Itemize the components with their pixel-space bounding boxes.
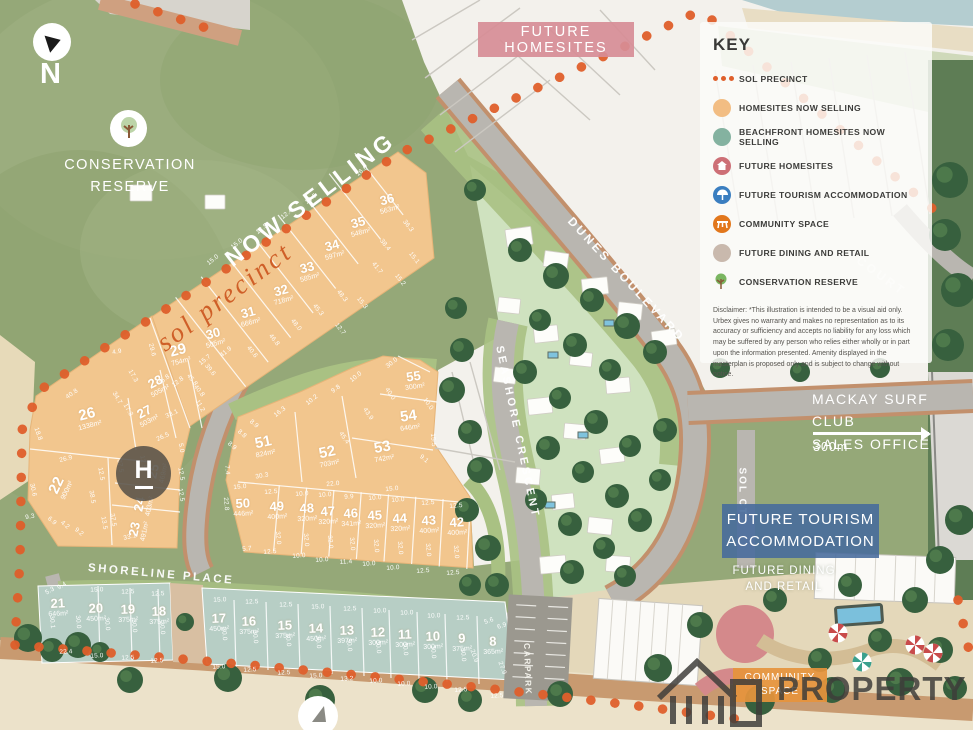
lot-area: 450m² [209, 625, 229, 633]
lot-number: 50 [233, 496, 254, 511]
key-legend-panel: KEY SOL PRECINCTHOMESITES NOW SELLINGBEA… [700, 22, 932, 363]
key-item-label: FUTURE HOMESITES [739, 161, 833, 171]
lot-number: 42 [447, 515, 468, 530]
lot-13[interactable]: 13397m² [337, 623, 358, 644]
lot-number: 14 [306, 621, 326, 635]
lot-number: 16 [239, 614, 259, 628]
lot-area: 646m² [48, 610, 68, 618]
lot-area: 320m² [318, 518, 338, 526]
lot-16[interactable]: 16375m² [239, 614, 260, 635]
circle-icon [713, 244, 739, 262]
lot-17[interactable]: 17450m² [209, 611, 230, 632]
lot-area: 400m² [267, 513, 287, 521]
masterplan-map: 15.015.012.512.412.516.036.315.115.238.4… [0, 0, 973, 730]
lot-8[interactable]: 8365m² [483, 634, 504, 655]
lot-47[interactable]: 47320m² [318, 504, 339, 526]
lot-number: 13 [337, 623, 357, 637]
lot-area: 365m² [483, 648, 503, 656]
pool [835, 604, 882, 625]
lot-50[interactable]: 50446m² [233, 496, 254, 518]
lot-number: 19 [118, 602, 138, 616]
lot-area: 375m² [118, 616, 138, 624]
lot-46[interactable]: 46341m² [341, 506, 362, 528]
key-item-future-dining-and-retail: FUTURE DINING AND RETAIL [713, 238, 920, 267]
lot-21[interactable]: 21646m² [48, 596, 69, 618]
key-item-label: COMMUNITY SPACE [739, 219, 829, 229]
lot-number: 45 [365, 508, 386, 523]
key-item-label: FUTURE DINING AND RETAIL [739, 248, 869, 258]
lot-area: 375m² [239, 628, 259, 636]
lot-area: 375m² [275, 632, 295, 640]
lot-23[interactable]: 23491m² [126, 518, 150, 542]
lot-18[interactable]: 18375m² [149, 604, 170, 625]
lot-25[interactable]: 25469m² [145, 460, 169, 484]
lot-area: 446m² [233, 510, 253, 518]
lot-19[interactable]: 19375m² [118, 602, 139, 623]
key-item-beachfront-homesites-now-selling: BEACHFRONT HOMESITES NOW SELLING [713, 122, 920, 151]
lot-48[interactable]: 48320m² [297, 501, 318, 523]
lot-20[interactable]: 20450m² [86, 601, 107, 622]
lot-area: 300m² [423, 643, 443, 651]
lot-44[interactable]: 44320m² [390, 511, 411, 533]
lot-53[interactable]: 53742m² [371, 438, 394, 464]
key-item-label: BEACHFRONT HOMESITES NOW SELLING [739, 127, 920, 147]
lot-area: 300m² [395, 641, 415, 649]
lot-number: 21 [48, 596, 69, 611]
lot-area: 400m² [419, 527, 439, 535]
lot-area: 320m² [390, 525, 410, 533]
lot-14[interactable]: 14450m² [306, 621, 327, 642]
lot-number: 8 [483, 634, 503, 648]
circle-icon [713, 128, 739, 146]
lot-area: 450m² [86, 615, 106, 623]
lot-number: 49 [267, 499, 288, 514]
lot-number: 15 [275, 618, 295, 632]
key-item-future-tourism-accommodation: FUTURE TOURISM ACCOMMODATION [713, 180, 920, 209]
lot-area: 300m² [368, 639, 388, 647]
lot-number: 18 [149, 604, 169, 618]
key-item-label: SOL PRECINCT [739, 74, 808, 84]
lot-number: 17 [209, 611, 229, 625]
lot-area: 400m² [447, 529, 467, 537]
lot-43[interactable]: 43400m² [419, 513, 440, 535]
key-item-future-homesites: FUTURE HOMESITES [713, 151, 920, 180]
lot-42[interactable]: 42400m² [447, 515, 468, 537]
future-homesites-banner: FUTURE HOMESITES [478, 22, 634, 57]
lot-area: 320m² [297, 515, 317, 523]
key-item-homesites-now-selling: HOMESITES NOW SELLING [713, 93, 920, 122]
key-item-community-space: COMMUNITY SPACE [713, 209, 920, 238]
tree-icon [713, 273, 739, 291]
lot-number: 20 [86, 601, 106, 615]
house-icon [713, 157, 739, 175]
lot-number: 43 [419, 513, 440, 528]
property-watermark: PROPERTY [655, 648, 973, 728]
lot-24[interactable]: 24403m² [131, 493, 155, 517]
lot-49[interactable]: 49400m² [267, 499, 288, 521]
lot-45[interactable]: 45320m² [365, 508, 386, 530]
lot-area: 341m² [341, 520, 361, 528]
key-item-label: CONSERVATION RESERVE [739, 277, 858, 287]
future-tourism-banner: FUTURE TOURISM ACCOMMODATION [722, 504, 879, 558]
key-title: KEY [713, 35, 920, 55]
tourism-icon [713, 186, 739, 204]
key-item-label: HOMESITES NOW SELLING [739, 103, 861, 113]
lot-number: 11 [395, 627, 415, 641]
circle-icon [713, 99, 739, 117]
watermark-text: PROPERTY [777, 670, 967, 708]
lot-area: 375m² [452, 645, 472, 653]
lot-12[interactable]: 12300m² [368, 625, 389, 646]
key-item-conservation-reserve: CONSERVATION RESERVE [713, 267, 920, 296]
key-item-label: FUTURE TOURISM ACCOMMODATION [739, 190, 908, 200]
key-disclaimer: Disclaimer: *This illustration is intend… [713, 306, 915, 381]
watermark-house-icon [655, 648, 785, 728]
lot-area: 450m² [306, 635, 326, 643]
lot-number: 48 [297, 501, 318, 516]
lot-number: 47 [318, 504, 339, 519]
lot-number: 9 [452, 631, 472, 645]
dots-icon [713, 76, 739, 81]
lot-10[interactable]: 10300m² [423, 629, 444, 650]
lot-55[interactable]: 55300m² [403, 368, 426, 391]
community-icon [713, 215, 739, 233]
lot-area: 375m² [149, 618, 169, 626]
lot-number: 12 [368, 625, 388, 639]
lot-number: 46 [341, 506, 362, 521]
lot-area: 397m² [337, 637, 357, 645]
lot-number: 10 [423, 629, 443, 643]
lot-54[interactable]: 54646m² [398, 407, 421, 432]
lot-9[interactable]: 9375m² [452, 631, 473, 652]
lot-15[interactable]: 15375m² [275, 618, 296, 639]
lot-area: 320m² [365, 522, 385, 530]
lot-11[interactable]: 11300m² [395, 627, 416, 648]
key-item-sol-precinct: SOL PRECINCT [713, 64, 920, 93]
lot-number: 44 [390, 511, 411, 526]
